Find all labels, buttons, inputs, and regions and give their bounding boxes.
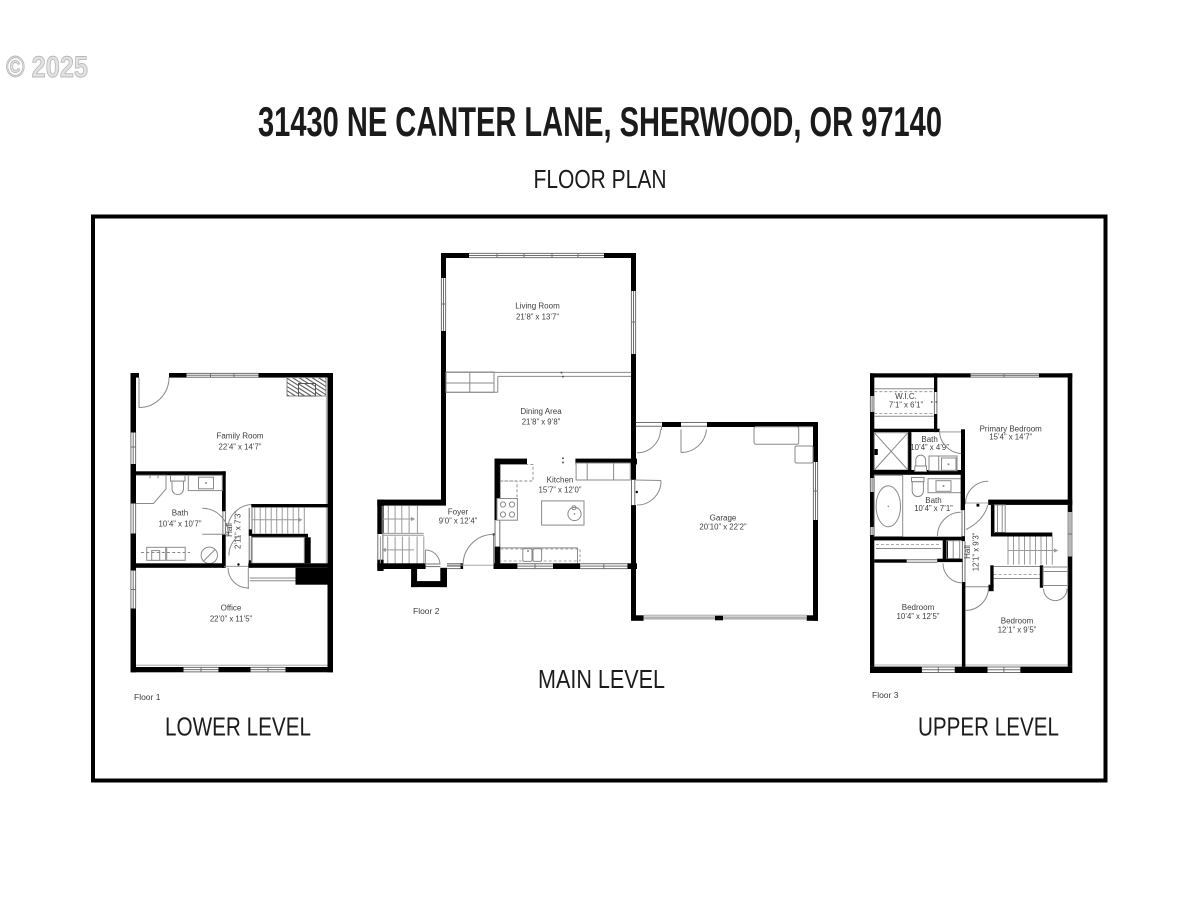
svg-text:Bedroom: Bedroom [902, 603, 935, 612]
svg-text:15’7” x 12’0”: 15’7” x 12’0” [539, 486, 582, 495]
svg-text:UPPER LEVEL: UPPER LEVEL [918, 712, 1059, 742]
svg-text:FLOOR PLAN: FLOOR PLAN [534, 164, 667, 194]
svg-text:Garage: Garage [710, 514, 737, 523]
svg-text:12’1” x 9’5”: 12’1” x 9’5” [998, 626, 1037, 635]
svg-text:Foyer: Foyer [448, 508, 469, 517]
svg-text:© 2025: © 2025 [6, 51, 88, 84]
svg-text:12’1” x 9’3”: 12’1” x 9’3” [972, 532, 981, 571]
svg-text:Dining Area: Dining Area [520, 407, 562, 416]
svg-text:20’10” x 22’2”: 20’10” x 22’2” [699, 523, 747, 532]
svg-text:10’4” x 12’5”: 10’4” x 12’5” [897, 612, 940, 621]
svg-text:Office: Office [221, 604, 242, 613]
svg-text:Bath: Bath [172, 509, 188, 518]
svg-text:Kitchen: Kitchen [547, 476, 574, 485]
svg-text:Floor 2: Floor 2 [413, 606, 440, 616]
svg-text:21’8” x 13’7”: 21’8” x 13’7” [516, 313, 559, 322]
svg-text:Living Room: Living Room [515, 302, 560, 311]
svg-text:MAIN LEVEL: MAIN LEVEL [538, 664, 665, 694]
svg-text:Family Room: Family Room [216, 432, 263, 441]
svg-text:Bedroom: Bedroom [1001, 617, 1034, 626]
svg-text:22’4” x 14’7”: 22’4” x 14’7” [219, 443, 262, 452]
svg-text:15’4” x 14’7”: 15’4” x 14’7” [989, 433, 1032, 442]
svg-text:LOWER LEVEL: LOWER LEVEL [165, 712, 311, 742]
svg-text:10’4” x 7’1”: 10’4” x 7’1” [914, 504, 953, 513]
svg-text:Floor 1: Floor 1 [134, 692, 161, 702]
svg-text:31430 NE CANTER LANE, SHERWOOD: 31430 NE CANTER LANE, SHERWOOD, OR 97140 [258, 98, 942, 145]
svg-text:7’1” x 6’1”: 7’1” x 6’1” [889, 401, 924, 410]
svg-text:10’4” x 10’7”: 10’4” x 10’7” [159, 520, 202, 529]
svg-text:9’0” x 12’4”: 9’0” x 12’4” [439, 517, 478, 526]
svg-text:2’11” x 7’3”: 2’11” x 7’3” [234, 511, 243, 549]
svg-text:21’8” x 9’8”: 21’8” x 9’8” [522, 418, 561, 427]
svg-text:22’0” x 11’5”: 22’0” x 11’5” [210, 615, 253, 624]
svg-text:Floor 3: Floor 3 [872, 690, 899, 700]
